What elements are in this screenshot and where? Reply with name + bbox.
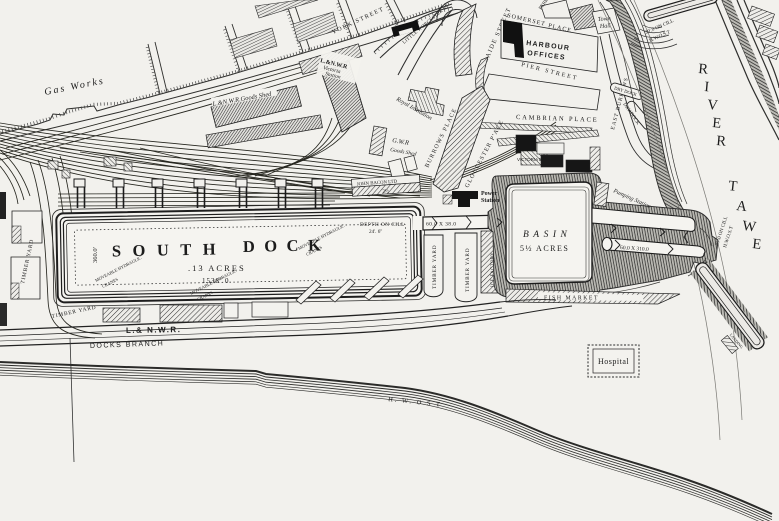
svg-text:R: R — [716, 133, 727, 150]
svg-text:SOUTH: SOUTH — [112, 239, 228, 260]
svg-text:Station: Station — [481, 198, 500, 204]
svg-text:R: R — [698, 61, 709, 78]
svg-text:E: E — [752, 236, 763, 253]
svg-text:W: W — [742, 218, 758, 235]
svg-text:VICTORIA BDGS: VICTORIA BDGS — [517, 157, 552, 162]
svg-text:Hospital: Hospital — [598, 357, 629, 366]
svg-text:L.& N.W.R.: L.& N.W.R. — [126, 325, 182, 335]
svg-text:Power: Power — [481, 191, 498, 197]
svg-text:24'. 6": 24'. 6" — [369, 229, 382, 235]
svg-text:E: E — [712, 115, 722, 132]
svg-text:T: T — [728, 178, 739, 195]
svg-text:2½: 2½ — [382, 189, 389, 194]
svg-text:360.0': 360.0' — [92, 247, 99, 263]
svg-text:TIMBER YARD: TIMBER YARD — [432, 245, 438, 289]
svg-text:5½ ACRES: 5½ ACRES — [520, 244, 569, 253]
svg-text:FISH MARKET: FISH MARKET — [544, 296, 599, 302]
svg-text:60.0 X 38.0: 60.0 X 38.0 — [426, 222, 456, 228]
svg-text:DEPTH ON CILL: DEPTH ON CILL — [360, 222, 405, 228]
svg-text:TIMBER YARD: TIMBER YARD — [465, 248, 471, 292]
svg-text:.13 ACRES: .13 ACRES — [188, 263, 246, 273]
svg-text:BASIN: BASIN — [523, 230, 571, 240]
svg-text:V: V — [707, 97, 719, 114]
